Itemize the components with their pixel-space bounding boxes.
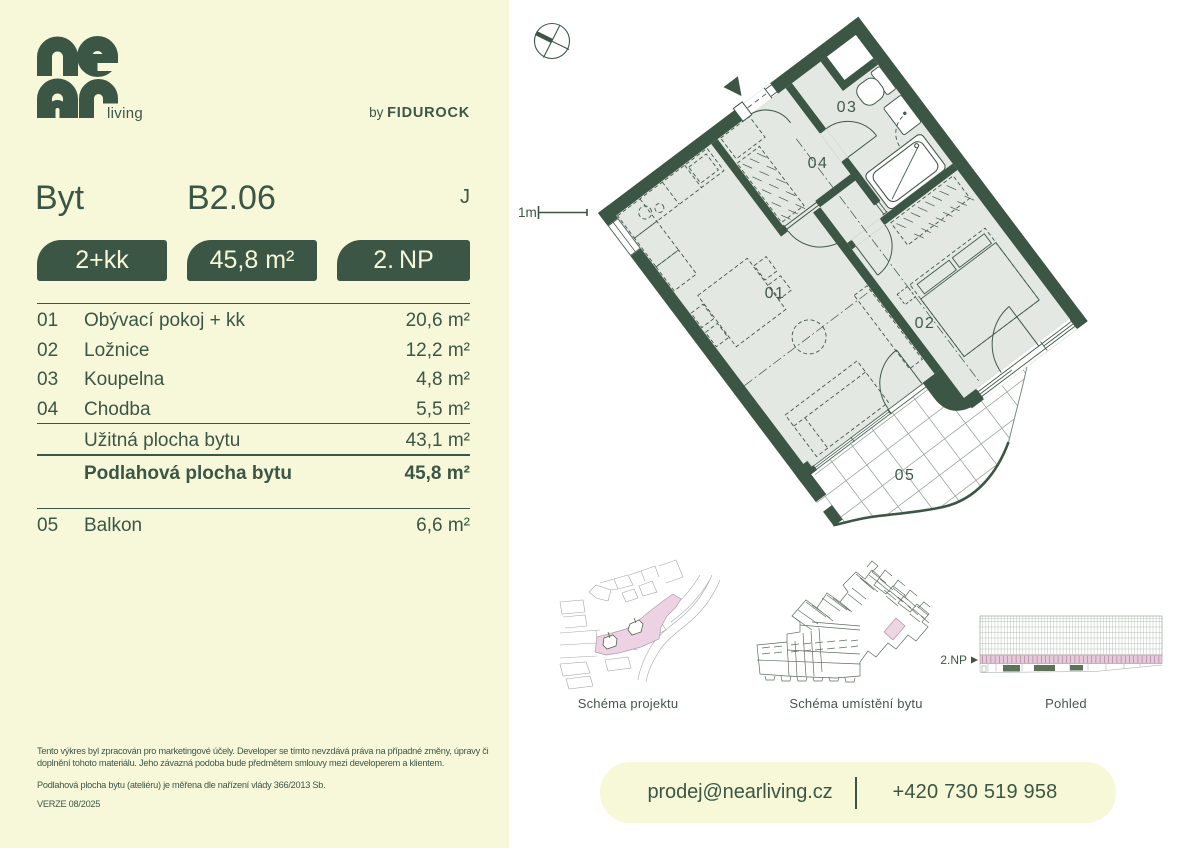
svg-text:05: 05 bbox=[895, 467, 916, 484]
svg-text:1m: 1m bbox=[518, 205, 537, 220]
svg-text:Pohled: Pohled bbox=[1045, 696, 1087, 711]
svg-text:Schéma projektu: Schéma projektu bbox=[578, 696, 679, 711]
svg-text:04: 04 bbox=[808, 155, 829, 172]
svg-text:03: 03 bbox=[837, 99, 858, 116]
svg-text:2.NP: 2.NP bbox=[940, 653, 967, 667]
svg-text:Schéma umístění bytu: Schéma umístění bytu bbox=[789, 696, 922, 711]
svg-text:01: 01 bbox=[765, 285, 786, 302]
svg-text:02: 02 bbox=[915, 315, 936, 332]
